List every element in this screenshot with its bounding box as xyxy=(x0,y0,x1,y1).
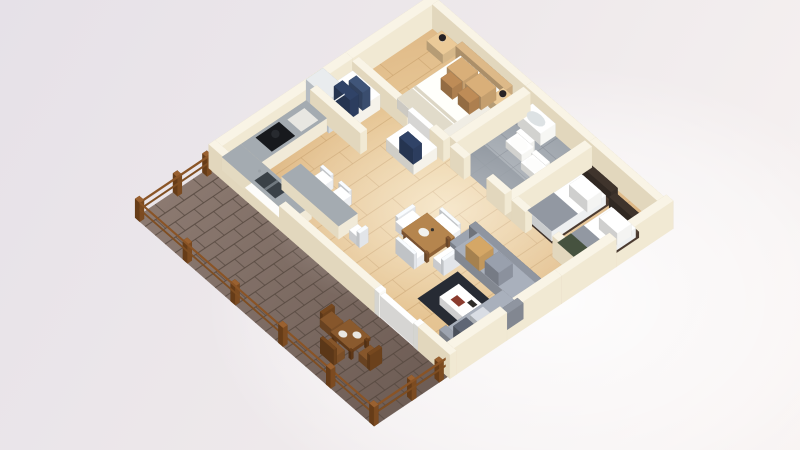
scene-svg xyxy=(0,0,800,450)
patio-table-leg xyxy=(349,348,353,359)
deck-rail-post xyxy=(370,400,379,426)
faucet xyxy=(258,170,261,173)
deck-rail-post xyxy=(279,321,288,347)
table-leg xyxy=(446,236,450,248)
table-leg xyxy=(425,251,429,263)
cooking-pot xyxy=(271,130,279,138)
dinnerware xyxy=(431,228,434,231)
floorplan-3d-view xyxy=(0,0,800,450)
deck-rail-post xyxy=(326,363,335,389)
